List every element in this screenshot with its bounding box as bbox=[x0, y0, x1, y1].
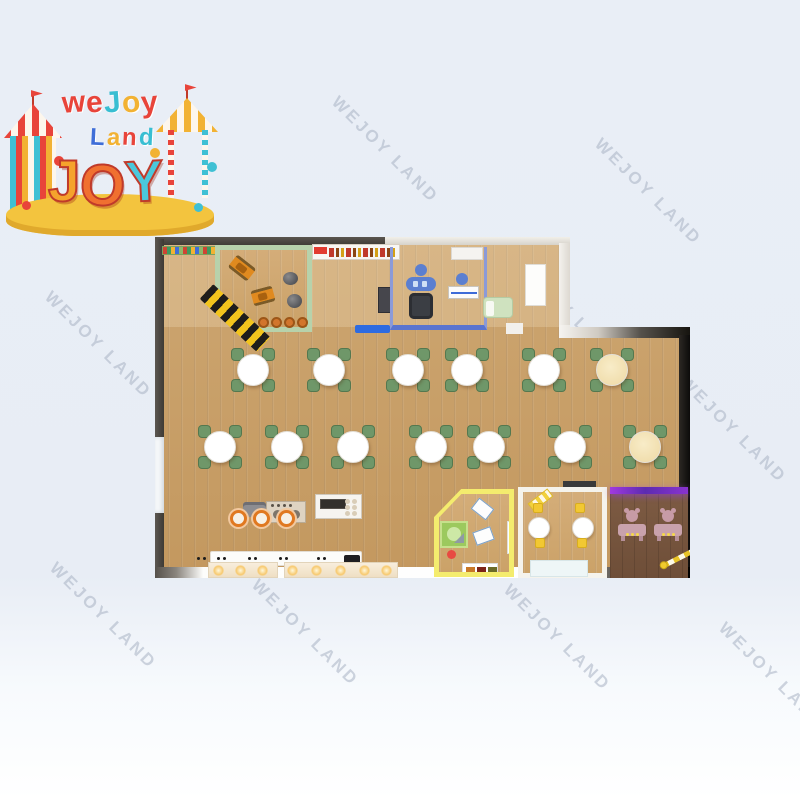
logo-letter: o bbox=[121, 85, 143, 120]
counter-taps bbox=[197, 557, 207, 561]
counter-taps bbox=[217, 557, 227, 561]
wall-left-upper bbox=[155, 239, 164, 437]
dining-table-set bbox=[231, 348, 275, 392]
blue-floor-mat bbox=[355, 325, 390, 333]
display-light bbox=[213, 565, 224, 576]
logo-letter: w bbox=[61, 85, 88, 121]
page-background: WEJOY LANDWEJOY LANDWEJOY LANDWEJOY LAND… bbox=[0, 0, 800, 800]
white-desk bbox=[448, 286, 479, 299]
balloon-icon bbox=[207, 162, 217, 172]
kids-vanity-station bbox=[618, 510, 646, 540]
watermark-text: WEJOY LAND bbox=[675, 372, 790, 487]
dining-table bbox=[271, 431, 303, 463]
bin-shelf bbox=[462, 563, 498, 578]
lounge-pillow bbox=[486, 301, 494, 316]
play-rock bbox=[287, 294, 302, 308]
vanity-leg bbox=[675, 536, 679, 541]
dining-table bbox=[629, 431, 661, 463]
counter-taps bbox=[248, 557, 258, 561]
storage-bin bbox=[488, 567, 497, 576]
barrier-ball bbox=[690, 544, 701, 555]
bear-ear bbox=[660, 508, 665, 513]
party-table bbox=[528, 517, 550, 539]
counter-tap-dot bbox=[323, 557, 326, 560]
dining-table-set bbox=[265, 425, 309, 469]
toy-display-shelf bbox=[162, 246, 223, 255]
bear-mirror bbox=[626, 510, 638, 522]
watermark-text: WEJOY LAND bbox=[40, 287, 155, 402]
watermark-text: WEJOY LAND bbox=[499, 580, 614, 695]
excavator-cab bbox=[235, 262, 248, 274]
dining-table-set bbox=[386, 348, 430, 392]
stove-knob bbox=[277, 504, 280, 507]
dining-table bbox=[392, 354, 424, 386]
yellow-chair bbox=[575, 503, 585, 513]
watermark-text: WEJOY LAND bbox=[45, 558, 160, 673]
display-light bbox=[287, 565, 298, 576]
yellow-chair bbox=[533, 503, 543, 513]
counter-taps bbox=[317, 557, 327, 561]
counter-tap-dot bbox=[285, 557, 288, 560]
toy-excavator bbox=[228, 254, 257, 281]
dining-table-set bbox=[548, 425, 592, 469]
dining-table bbox=[415, 431, 447, 463]
watermark-text: WEJOY LAND bbox=[590, 134, 705, 249]
activity-mat bbox=[440, 521, 468, 548]
play-stool bbox=[271, 317, 282, 328]
vanity-leg bbox=[621, 536, 625, 541]
dining-table-set bbox=[623, 425, 667, 469]
dining-table bbox=[237, 354, 269, 386]
carnival-swing-icon bbox=[156, 90, 218, 198]
office-room bbox=[390, 247, 487, 330]
machine-display bbox=[320, 499, 346, 509]
wall-stub bbox=[506, 323, 523, 334]
yellow-chair bbox=[535, 538, 545, 548]
storage-bin bbox=[477, 567, 486, 576]
yellow-chair bbox=[577, 538, 587, 548]
bear-ear bbox=[635, 508, 640, 513]
dining-table-set bbox=[307, 348, 351, 392]
vanity-light bbox=[636, 533, 639, 536]
dining-table-set bbox=[198, 425, 242, 469]
logo-letter: y bbox=[140, 85, 160, 120]
toy-excavator bbox=[250, 285, 275, 306]
dining-table bbox=[204, 431, 236, 463]
floorplan bbox=[155, 237, 690, 578]
white-table bbox=[525, 264, 546, 306]
craft-room-floor bbox=[439, 494, 509, 572]
dining-table bbox=[528, 354, 560, 386]
dining-table bbox=[337, 431, 369, 463]
logo-letter: O bbox=[78, 151, 128, 221]
logo-text-wejoy: weJoy bbox=[62, 86, 159, 120]
logo-letter: Y bbox=[124, 147, 166, 216]
display-light bbox=[235, 565, 246, 576]
wall-top-right bbox=[385, 237, 570, 245]
dining-table-set bbox=[467, 425, 511, 469]
counter-tap-dot bbox=[279, 557, 282, 560]
cooktop-burner bbox=[230, 510, 247, 527]
vanity-light bbox=[626, 533, 629, 536]
display-light bbox=[335, 565, 346, 576]
cooktop-burner bbox=[278, 510, 295, 527]
dining-table-set bbox=[522, 348, 566, 392]
dining-table-set bbox=[409, 425, 453, 469]
red-ball bbox=[447, 550, 456, 559]
dining-table-set bbox=[331, 425, 375, 469]
mound-dot bbox=[22, 201, 31, 210]
stove-knob bbox=[283, 504, 286, 507]
watermark-text: WEJOY LAND bbox=[714, 618, 800, 733]
vanity-leg bbox=[657, 536, 661, 541]
wejoy-land-logo: weJoy Land JOY bbox=[4, 84, 222, 236]
watermark-text: WEJOY LAND bbox=[247, 575, 362, 690]
vanity-light bbox=[672, 533, 675, 536]
vanity-light bbox=[662, 533, 665, 536]
desk-chair bbox=[415, 264, 427, 276]
vanity-leg bbox=[639, 536, 643, 541]
bear-mirror bbox=[662, 510, 674, 522]
desk-item bbox=[422, 281, 427, 287]
storage-bin bbox=[466, 567, 475, 576]
vanity-light bbox=[631, 533, 634, 536]
logo-letter: J bbox=[48, 148, 80, 215]
play-stool bbox=[284, 317, 295, 328]
party-table bbox=[572, 517, 594, 539]
dining-table bbox=[313, 354, 345, 386]
cooktop-burner bbox=[253, 510, 270, 527]
desk-item bbox=[413, 281, 418, 287]
dining-table-set bbox=[590, 348, 634, 392]
play-rock bbox=[283, 272, 298, 285]
vanity-light bbox=[667, 533, 670, 536]
desk-stripe bbox=[451, 292, 477, 294]
stove-knob bbox=[271, 504, 274, 507]
machine-buttons bbox=[345, 499, 350, 504]
craft-desk bbox=[472, 526, 495, 546]
counter-tap-dot bbox=[197, 557, 200, 560]
stove-knob bbox=[289, 504, 292, 507]
cabinet bbox=[451, 247, 483, 260]
party-room-counter bbox=[530, 560, 588, 577]
counter-tap-dot bbox=[254, 557, 257, 560]
counter-tap-dot bbox=[203, 557, 206, 560]
office-chair bbox=[409, 293, 433, 319]
dining-table bbox=[596, 354, 628, 386]
tent-roof bbox=[156, 98, 218, 132]
display-light bbox=[381, 565, 392, 576]
espresso-station bbox=[315, 494, 362, 519]
craft-room bbox=[434, 489, 514, 577]
counter-tap-dot bbox=[223, 557, 226, 560]
blue-desk bbox=[406, 277, 436, 291]
shelf-products bbox=[329, 248, 395, 257]
retail-display-shelf bbox=[312, 244, 400, 260]
door-opening-left bbox=[155, 437, 164, 513]
excavator-cab bbox=[257, 291, 268, 300]
display-light bbox=[359, 565, 370, 576]
dining-table bbox=[473, 431, 505, 463]
watermark-text: WEJOY LAND bbox=[327, 92, 442, 207]
display-light bbox=[257, 565, 268, 576]
tent-roof bbox=[4, 104, 62, 138]
bear-ear bbox=[671, 508, 676, 513]
counter-tap-dot bbox=[248, 557, 251, 560]
play-stool bbox=[297, 317, 308, 328]
craft-desk bbox=[471, 498, 495, 521]
display-light bbox=[311, 565, 322, 576]
logo-letter: J bbox=[103, 85, 123, 120]
bear-ear bbox=[624, 508, 629, 513]
kids-vanity-station bbox=[654, 510, 682, 540]
wall-step-vertical bbox=[559, 243, 570, 327]
purple-light-wall bbox=[610, 487, 688, 494]
tent-leg bbox=[168, 130, 174, 198]
play-stool bbox=[258, 317, 269, 328]
counter-taps bbox=[279, 557, 289, 561]
dining-table bbox=[451, 354, 483, 386]
counter-tap-dot bbox=[317, 557, 320, 560]
dining-table-set bbox=[445, 348, 489, 392]
lounge-bed bbox=[483, 297, 513, 318]
dining-table bbox=[554, 431, 586, 463]
desk-chair bbox=[456, 273, 468, 285]
counter-tap-dot bbox=[217, 557, 220, 560]
salon-room bbox=[610, 487, 688, 578]
mound-dot bbox=[194, 203, 203, 212]
shelf-sign bbox=[314, 247, 327, 254]
logo-text-joy: JOY bbox=[48, 148, 164, 215]
